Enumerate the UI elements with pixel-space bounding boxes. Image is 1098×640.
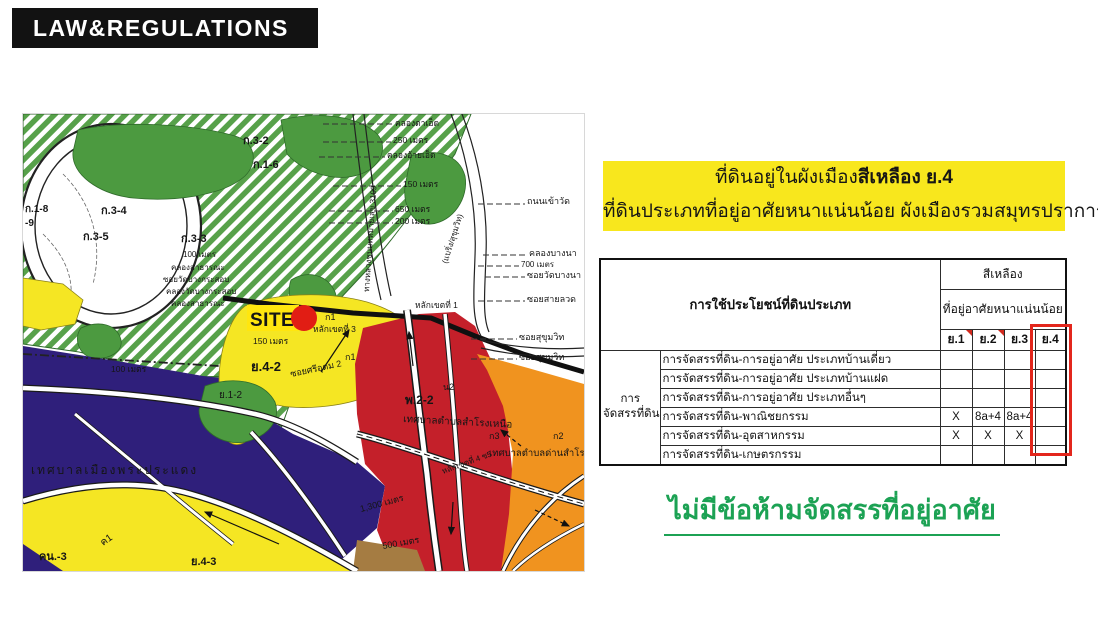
row-value	[1035, 369, 1066, 388]
row-value	[940, 445, 972, 465]
row-value	[940, 350, 972, 369]
row-value	[1035, 445, 1066, 465]
row-value	[1035, 426, 1066, 445]
map-label: 650 เมตร	[395, 204, 431, 214]
row-value	[972, 369, 1004, 388]
row-value	[972, 445, 1004, 465]
map-label: ย.4-3	[191, 556, 216, 568]
site-label: SITE	[250, 310, 294, 331]
map-label: ย.1-2	[219, 390, 243, 401]
table-row: การจัดสรรที่ดิน-พาณิชยกรรมX8a+48a+4	[600, 407, 1066, 426]
table-row: การจัดสรรที่ดิน-อุตสาหกรรมXXX	[600, 426, 1066, 445]
map-label: ถนนเข้าวัด	[527, 196, 570, 206]
row-group-label: การจัดสรรที่ดิน	[600, 350, 660, 465]
row-value	[1035, 388, 1066, 407]
row-value: X	[940, 426, 972, 445]
row-value	[1004, 369, 1035, 388]
row-label: การจัดสรรที่ดิน-พาณิชยกรรม	[660, 407, 940, 426]
highlight-line-2: ที่ดินประเภทที่อยู่อาศัยหนาแน่นน้อย ผังเ…	[603, 195, 1065, 229]
map-label: ก.1-6	[253, 159, 279, 171]
row-value	[1035, 350, 1066, 369]
row-label: การจัดสรรที่ดิน-การอยู่อาศัย ประเภทบ้านแ…	[660, 369, 940, 388]
table-group-header: สีเหลือง	[940, 259, 1066, 289]
map-label: ก.3-2	[243, 135, 269, 147]
slide: LAW&REGULATIONS	[0, 0, 1098, 640]
column-header-y3: ย.3	[1004, 329, 1035, 350]
map-label: หลักเขตที่ 3	[313, 323, 356, 334]
map-label: ก.3-5	[83, 231, 109, 243]
table-row: การจัดสรรที่ดิน-การอยู่อาศัย ประเภทอื่นๆ	[600, 388, 1066, 407]
map-label: คลองวัดบางกระสอบ	[166, 287, 236, 296]
map-label: พ.2-2	[405, 393, 434, 407]
map-label: 200 เมตร	[395, 216, 431, 226]
zoning-map: ก.1-8-9ก.3-4ก.3-5ก.3-3ก.3-2ก.1-6100 เมตร…	[22, 113, 585, 572]
row-value: 8a+4	[1004, 407, 1035, 426]
table-row: การจัดสรรที่ดิน-การอยู่อาศัย ประเภทบ้านแ…	[600, 369, 1066, 388]
map-label: ก.3-4	[101, 205, 127, 217]
row-value	[972, 388, 1004, 407]
map-label: เทศบาลเมืองพระประแดง	[31, 463, 198, 477]
map-label: ซอยวัดบางนา	[527, 270, 581, 280]
table-body: การจัดสรรที่ดินการจัดสรรที่ดิน-การอยู่อา…	[600, 350, 1066, 465]
map-label: คลองสาธารณะ	[171, 299, 225, 308]
map-label: ซอยสายลวด	[527, 294, 576, 304]
map-label: หลักเขตที่ 1	[415, 299, 458, 310]
map-label: ย.4-2	[251, 359, 281, 374]
highlight-box: ที่ดินอยู่ในผังเมืองสีเหลือง ย.4 ที่ดินป…	[603, 161, 1065, 231]
row-value: X	[1004, 426, 1035, 445]
conclusion: ไม่มีข้อห้ามจัดสรรที่อยู่อาศัย	[599, 488, 1065, 536]
row-label: การจัดสรรที่ดิน-เกษตรกรรม	[660, 445, 940, 465]
map-label: คลองอ้ายเอ็ด	[387, 149, 436, 160]
row-value: 8a+4	[972, 407, 1004, 426]
map-label: คลองตาเอ็ด	[395, 117, 439, 128]
header-box: LAW&REGULATIONS	[12, 8, 318, 48]
regulation-table: การใช้ประโยชน์ที่ดินประเภท สีเหลือง ที่อ…	[599, 258, 1067, 466]
page-title: LAW&REGULATIONS	[12, 8, 318, 48]
map-label: 150 เมตร	[253, 336, 289, 346]
highlight-line-1: ที่ดินอยู่ในผังเมืองสีเหลือง ย.4	[603, 161, 1065, 195]
row-value	[1004, 350, 1035, 369]
map-label: ก2	[553, 431, 563, 441]
map-label: ซอยสุขุมวิท	[519, 332, 564, 343]
map-label: ซอยสุขุมวิท	[519, 352, 564, 363]
row-value: X	[940, 407, 972, 426]
row-value	[972, 350, 1004, 369]
row-label: การจัดสรรที่ดิน-การอยู่อาศัย ประเภทอื่นๆ	[660, 388, 940, 407]
row-value: X	[972, 426, 1004, 445]
table-row: การจัดสรรที่ดินการจัดสรรที่ดิน-การอยู่อา…	[600, 350, 1066, 369]
zoning-map-svg: ก.1-8-9ก.3-4ก.3-5ก.3-3ก.3-2ก.1-6100 เมตร…	[23, 114, 584, 571]
map-label: ก.3-3	[181, 233, 207, 245]
map-label: ซอยวัดบางกระสอบ	[163, 275, 229, 284]
map-label: 250 เมตร	[393, 135, 429, 145]
regulation-table-wrap: การใช้ประโยชน์ที่ดินประเภท สีเหลือง ที่อ…	[599, 258, 1065, 466]
column-header-y1: ย.1	[940, 329, 972, 350]
map-label: -9	[25, 218, 34, 229]
site-marker: SITE	[247, 305, 317, 331]
map-label: ก1	[345, 352, 355, 362]
table-corner-header: การใช้ประโยชน์ที่ดินประเภท	[600, 259, 940, 350]
row-value	[940, 369, 972, 388]
column-header-y4: ย.4	[1035, 329, 1066, 350]
map-label: 100 เมตร	[183, 250, 217, 259]
row-value	[940, 388, 972, 407]
row-label: การจัดสรรที่ดิน-การอยู่อาศัย ประเภทบ้านเ…	[660, 350, 940, 369]
table-row: การจัดสรรที่ดิน-เกษตรกรรม	[600, 445, 1066, 465]
map-label: 150 เมตร	[403, 179, 439, 189]
conclusion-text: ไม่มีข้อห้ามจัดสรรที่อยู่อาศัย	[664, 488, 1000, 536]
map-label: เทศบาลตำบลด่านสำโรง	[489, 447, 584, 459]
map-label: น2	[443, 382, 454, 392]
right-column: ที่ดินอยู่ในผังเมืองสีเหลือง ย.4 ที่ดินป…	[599, 0, 1069, 640]
row-value	[1004, 388, 1035, 407]
map-label: คลองบางนา	[529, 248, 577, 258]
map-label: ก3	[489, 431, 499, 441]
row-value	[1035, 407, 1066, 426]
map-label: 700 เมตร	[521, 260, 555, 269]
row-value	[1004, 445, 1035, 465]
map-label: ก1	[325, 312, 335, 322]
table-sub-header: ที่อยู่อาศัยหนาแน่นน้อย	[940, 289, 1066, 329]
site-dot	[291, 305, 317, 331]
map-label: คลองสาธารณะ	[171, 263, 225, 272]
row-label: การจัดสรรที่ดิน-อุตสาหกรรม	[660, 426, 940, 445]
column-header-y2: ย.2	[972, 329, 1004, 350]
map-label: คน.-3	[39, 551, 67, 563]
map-label: ก.1-8	[25, 204, 49, 215]
map-label: 100 เมตร	[111, 364, 147, 374]
